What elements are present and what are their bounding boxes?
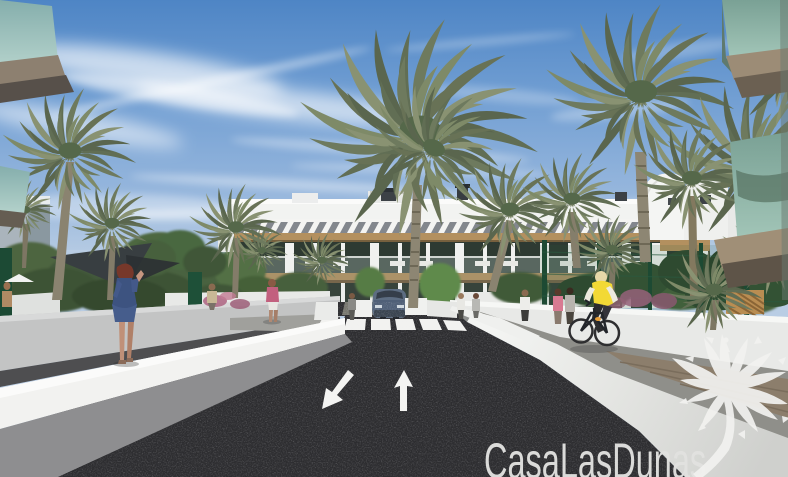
svg-text:CasaLasDunas: CasaLasDunas — [484, 433, 706, 477]
